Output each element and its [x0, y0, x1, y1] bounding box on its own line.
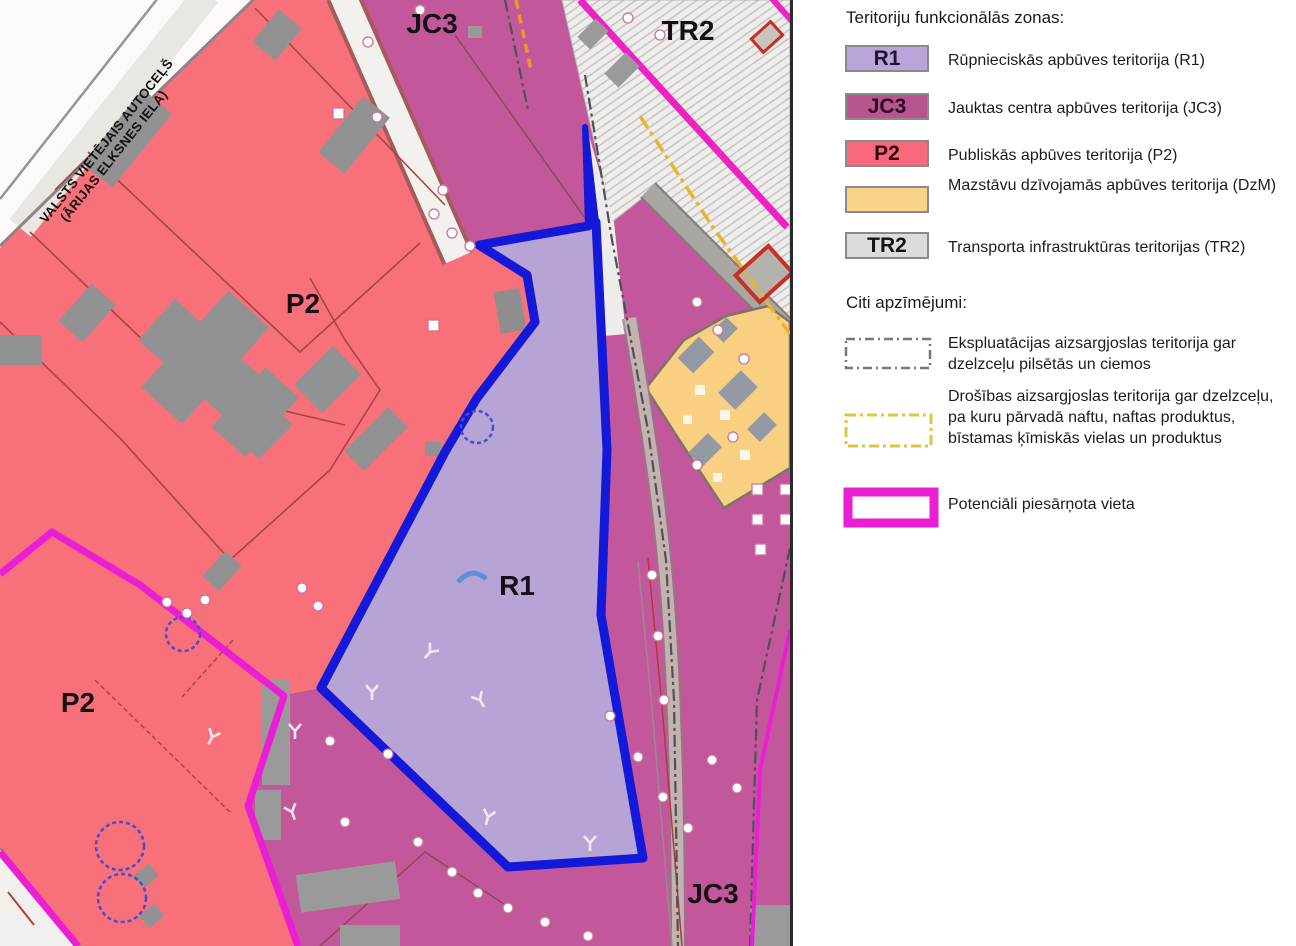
- legend-swatch-tr2: TR2: [845, 232, 929, 259]
- label-r1: R1: [499, 570, 535, 601]
- legend-swatch-jc3: JC3: [845, 93, 929, 120]
- legend-swatch-dzm: [845, 186, 929, 213]
- legend-swatch-p2: P2: [845, 140, 929, 167]
- legend-label-dzm: Mazstāvu dzīvojamās apbūves teritorija (…: [948, 175, 1288, 196]
- safety-protection-symbol: [841, 410, 937, 457]
- label-jc3-bottom: JC3: [687, 878, 738, 909]
- legend-other-title: Citi apzīmējumi:: [846, 293, 967, 313]
- legend-label-p2: Publiskās apbūves teritorija (P2): [948, 145, 1288, 166]
- legend-swatch-r1: R1: [845, 45, 929, 72]
- label-tr2: TR2: [662, 15, 715, 46]
- label-jc3-top: JC3: [406, 8, 457, 39]
- zoning-map: JC3 TR2 P2 P2 R1 JC3 VALSTS VIETĒJAIS AU…: [0, 0, 790, 946]
- label-p2-lower: P2: [61, 687, 95, 718]
- label-p2-upper: P2: [286, 288, 320, 319]
- contaminated-site-symbol: [841, 485, 941, 536]
- legend-panel: Teritoriju funkcionālās zonas: R1 Rūpnie…: [793, 0, 1296, 946]
- legend-label-tr2: Transporta infrastruktūras teritorijas (…: [948, 237, 1288, 258]
- legend-label-contaminated: Potenciāli piesārņota vieta: [948, 494, 1288, 515]
- legend-zones-title: Teritoriju funkcionālās zonas:: [846, 8, 1064, 28]
- railway-protection-symbol: [841, 335, 937, 378]
- legend-label-jc3: Jauktas centra apbūves teritorija (JC3): [948, 98, 1288, 119]
- legend-label-r1: Rūpnieciskās apbūves teritorija (R1): [948, 50, 1288, 71]
- map-canvas: JC3 TR2 P2 P2 R1 JC3 VALSTS VIETĒJAIS AU…: [0, 0, 790, 946]
- legend-label-safety-protection: Drošības aizsargjoslas teritorija gar dz…: [948, 386, 1288, 449]
- zoning-map-page: JC3 TR2 P2 P2 R1 JC3 VALSTS VIETĒJAIS AU…: [0, 0, 1296, 946]
- legend-label-railway-protection: Ekspluatācijas aizsargjoslas teritorija …: [948, 333, 1288, 375]
